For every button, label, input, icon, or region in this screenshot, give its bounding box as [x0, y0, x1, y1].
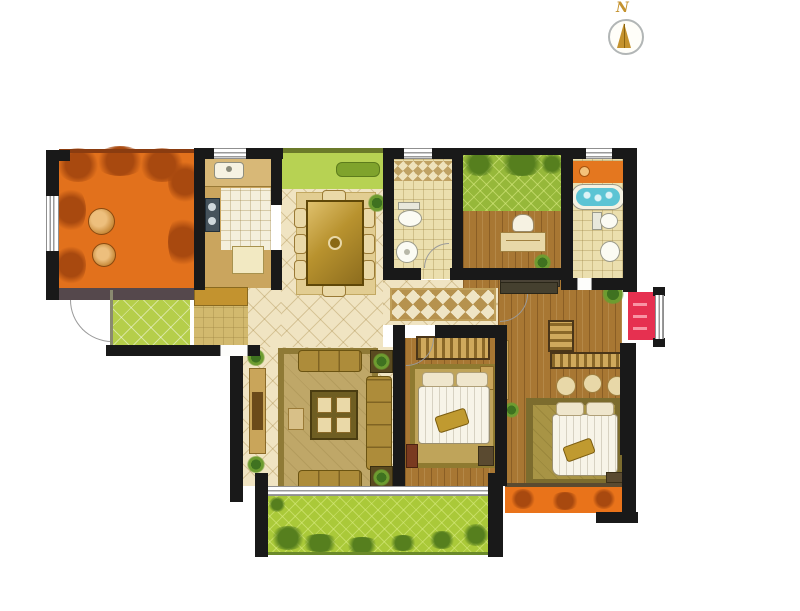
plant-icon — [373, 353, 390, 370]
coffee-table-panel — [336, 397, 351, 413]
window — [404, 148, 432, 159]
planter-icon — [550, 492, 580, 510]
terrace-stool — [92, 243, 116, 267]
compass-north-label: N — [616, 0, 629, 16]
washbasin — [600, 241, 620, 262]
pillow — [422, 372, 454, 387]
wall — [271, 150, 282, 205]
wall — [452, 148, 463, 278]
shrub-icon — [428, 531, 456, 549]
wall — [623, 148, 637, 292]
window — [46, 196, 59, 251]
window — [214, 148, 246, 159]
sofa-top — [298, 350, 362, 372]
shrub-icon — [300, 534, 340, 552]
floor-plan: N — [0, 0, 800, 611]
wall — [622, 448, 636, 520]
bathroom-1-mosaic — [394, 161, 452, 181]
wardrobe — [550, 352, 624, 369]
terrace-table — [88, 208, 115, 235]
entry-door — [220, 345, 248, 356]
wall — [488, 473, 503, 557]
flower-bed-edge — [277, 148, 383, 153]
sink-faucet — [226, 166, 232, 172]
wall — [383, 268, 421, 280]
porch-edge — [110, 290, 113, 347]
compass: N — [600, 4, 650, 60]
bathroom-2-door — [577, 278, 592, 290]
entry-porch-room — [112, 299, 190, 347]
wall — [194, 150, 205, 290]
wall — [106, 345, 220, 356]
accent-cabinet — [406, 444, 418, 468]
wall — [495, 325, 507, 486]
compass-needle-line — [624, 24, 625, 48]
wall — [498, 268, 561, 280]
garden-foliage-icon — [462, 152, 496, 176]
bathtub-water — [576, 188, 620, 206]
floor-tray — [288, 408, 304, 430]
toilet-bowl — [398, 210, 422, 227]
wall — [463, 148, 563, 155]
coffee-table — [310, 390, 358, 440]
toilet — [398, 202, 420, 210]
wall — [271, 250, 282, 290]
plant-icon — [247, 456, 265, 473]
desk-drawer-line — [506, 240, 540, 241]
master-top-cabinet — [500, 282, 558, 294]
wall — [383, 148, 394, 280]
ottoman — [583, 374, 602, 393]
foliage-icon — [56, 186, 86, 234]
wall — [393, 325, 405, 486]
planter-icon — [510, 489, 536, 509]
stove-burner — [208, 217, 216, 225]
wall — [561, 278, 577, 290]
window — [586, 148, 612, 159]
terrace-door-arc — [70, 300, 112, 342]
pillow — [586, 402, 614, 416]
wall — [46, 150, 70, 161]
wall — [450, 268, 498, 280]
hallway-rug — [390, 288, 496, 321]
balcony-parapet — [268, 552, 488, 555]
kitchen-tile-floor — [221, 188, 271, 250]
shelf-basin — [579, 166, 590, 177]
shrub-icon — [268, 497, 286, 512]
wall — [561, 148, 573, 290]
entry-hall-room — [194, 306, 248, 347]
wall — [248, 345, 260, 356]
desk — [500, 232, 546, 252]
wall — [596, 512, 638, 523]
plant-icon — [373, 469, 390, 486]
shrub-icon — [462, 524, 490, 546]
washbasin-drain — [404, 249, 410, 255]
toilet-bowl — [600, 213, 618, 229]
refrigerator — [232, 246, 264, 274]
wall — [435, 325, 495, 338]
tv — [252, 392, 263, 430]
coffee-table-panel — [317, 417, 332, 433]
terrace-rear-wall — [46, 288, 194, 300]
stove-burner — [208, 203, 216, 211]
foliage-icon — [56, 244, 86, 286]
wall — [620, 343, 636, 455]
window — [655, 295, 664, 339]
master-balcony-sill — [505, 483, 622, 487]
terrace-parapet — [59, 149, 194, 153]
ottoman — [556, 376, 576, 396]
pillow — [456, 372, 488, 387]
wardrobe — [548, 320, 574, 352]
red-cabinet-marks — [633, 300, 647, 330]
page: { "title": "apartment-floor-plan", "comp… — [0, 0, 800, 611]
sofa-right — [366, 376, 392, 470]
desk-chair — [512, 214, 534, 232]
wall — [255, 473, 268, 557]
shrub-icon — [388, 535, 418, 551]
coffee-table-panel — [336, 417, 351, 433]
dresser — [478, 446, 494, 466]
table-centerpiece — [328, 236, 342, 250]
wall — [653, 338, 665, 347]
planter-icon — [592, 489, 616, 509]
shrub-icon — [344, 537, 380, 553]
garden-bench — [336, 162, 380, 177]
wall — [230, 352, 243, 502]
pillow — [556, 402, 584, 416]
passage-floor — [248, 288, 281, 347]
coffee-table-panel — [317, 397, 332, 413]
wall — [592, 278, 637, 290]
picture-window — [268, 486, 488, 496]
